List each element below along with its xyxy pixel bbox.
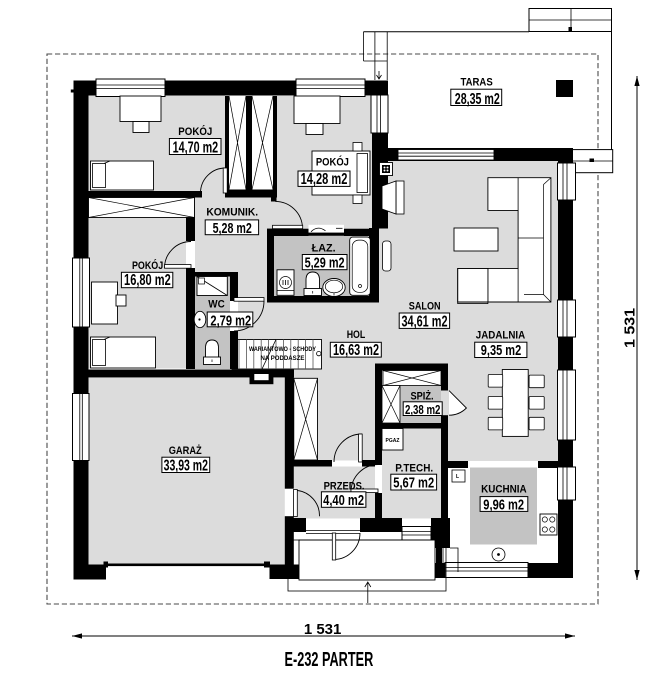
svg-text:14,28 m2: 14,28 m2 [301, 171, 348, 188]
svg-text:L: L [456, 474, 459, 480]
svg-text:POKÓJ: POKÓJ [316, 156, 349, 169]
svg-text:2,79 m2: 2,79 m2 [210, 314, 251, 330]
svg-text:HOL: HOL [347, 329, 366, 341]
svg-text:P.TECH.: P.TECH. [395, 463, 433, 475]
svg-text:WC: WC [208, 299, 224, 311]
svg-text:KUCHNIA: KUCHNIA [481, 484, 527, 496]
svg-text:JADALNIA: JADALNIA [476, 330, 525, 342]
svg-text:14,70 m2: 14,70 m2 [173, 139, 219, 156]
svg-text:SPIŻ.: SPIŻ. [410, 389, 433, 402]
svg-text:1 531: 1 531 [622, 308, 639, 348]
svg-text:5,28 m2: 5,28 m2 [213, 221, 252, 237]
svg-text:PRZEDS.: PRZEDS. [324, 480, 365, 492]
svg-text:POKÓJ: POKÓJ [132, 259, 163, 272]
svg-text:PGAZ: PGAZ [386, 438, 400, 444]
svg-text:ŁAZ.: ŁAZ. [312, 243, 336, 255]
svg-text:E-232 PARTER: E-232 PARTER [285, 649, 374, 671]
svg-text:9,35 m2: 9,35 m2 [481, 343, 521, 359]
svg-text:TARAS: TARAS [461, 76, 493, 88]
svg-text:34,61 m2: 34,61 m2 [402, 314, 448, 331]
svg-text:9,96 m2: 9,96 m2 [483, 498, 524, 514]
svg-text:16,63 m2: 16,63 m2 [333, 342, 379, 359]
svg-text:NA PODDASZE: NA PODDASZE [261, 355, 305, 362]
svg-text:POKÓJ: POKÓJ [178, 125, 212, 138]
svg-text:33,93 m2: 33,93 m2 [164, 457, 208, 474]
svg-text:KOMUNIK.: KOMUNIK. [206, 207, 258, 219]
svg-text:2,38 m2: 2,38 m2 [405, 402, 441, 417]
svg-text:5,29 m2: 5,29 m2 [305, 256, 345, 272]
svg-text:5,67 m2: 5,67 m2 [393, 475, 434, 491]
svg-text:28,35 m2: 28,35 m2 [455, 91, 500, 108]
svg-text:GARAŻ: GARAŻ [169, 444, 202, 457]
svg-text:WARIANTOWO - SCHODY: WARIANTOWO - SCHODY [249, 346, 316, 353]
svg-text:4,40 m2: 4,40 m2 [323, 493, 364, 509]
svg-text:1 531: 1 531 [304, 621, 342, 638]
svg-text:SALON: SALON [409, 300, 441, 312]
svg-text:16,80 m2: 16,80 m2 [124, 272, 171, 289]
